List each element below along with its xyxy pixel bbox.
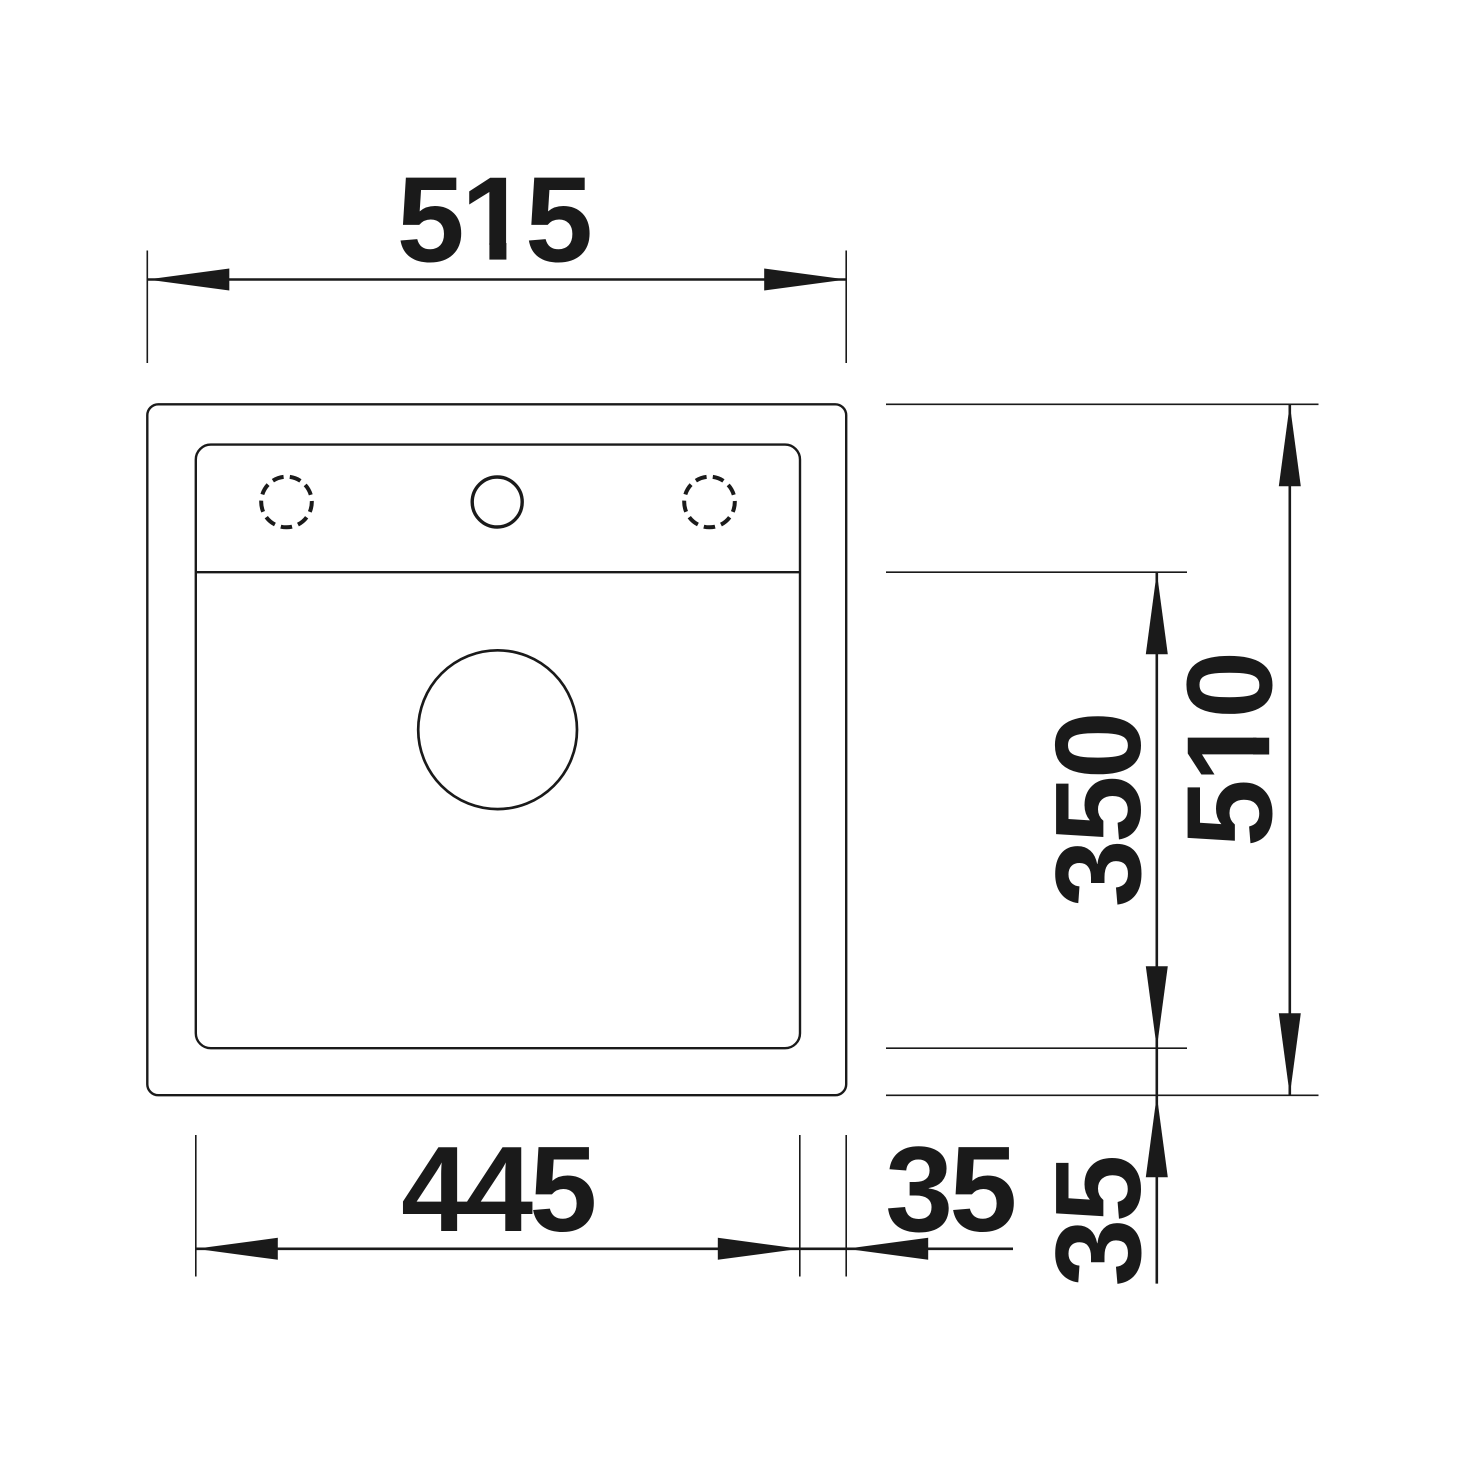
svg-text:445: 445: [401, 1121, 594, 1257]
svg-text:35: 35: [1030, 1157, 1166, 1286]
svg-text:510: 510: [1162, 655, 1298, 847]
svg-text:515: 515: [397, 152, 590, 288]
svg-text:35: 35: [885, 1121, 1014, 1257]
svg-text:350: 350: [1030, 715, 1166, 907]
